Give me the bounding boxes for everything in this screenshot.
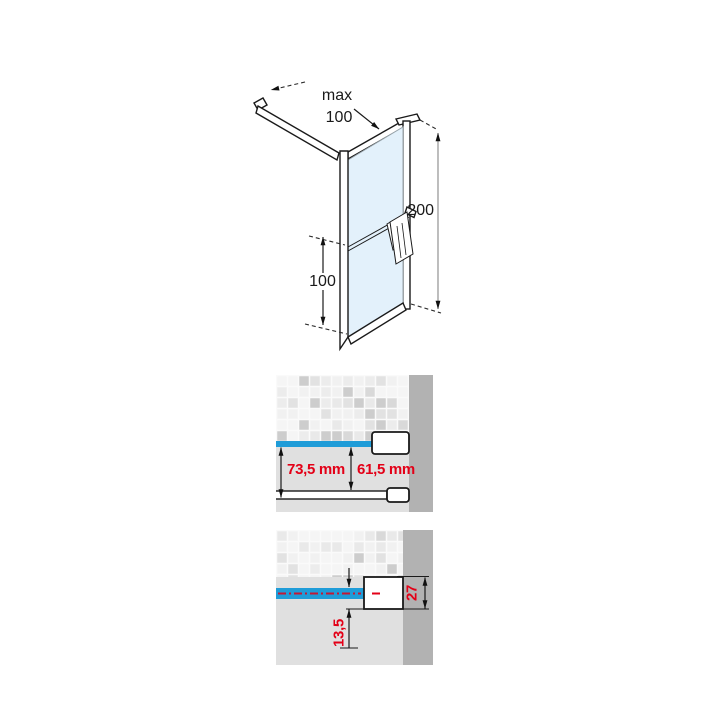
- label-width-100: 100: [326, 109, 353, 126]
- tile: [387, 564, 397, 574]
- tile: [376, 398, 386, 408]
- tile: [288, 564, 298, 574]
- label-73-5-mm: 73,5 mm: [287, 461, 345, 478]
- tile: [277, 553, 287, 563]
- tile: [310, 420, 320, 430]
- tile: [343, 431, 353, 441]
- tile: [321, 431, 331, 441]
- tile: [277, 564, 287, 574]
- tile: [398, 420, 408, 430]
- tile: [277, 387, 287, 397]
- wall-profile-plan: [364, 577, 403, 609]
- tile: [277, 431, 287, 441]
- tile: [376, 542, 386, 552]
- tile: [398, 387, 408, 397]
- tile: [277, 376, 287, 386]
- tile: [376, 376, 386, 386]
- tile: [365, 564, 375, 574]
- label-max: max: [322, 87, 352, 104]
- tile: [310, 553, 320, 563]
- tile: [288, 553, 298, 563]
- tile: [387, 542, 397, 552]
- tile: [332, 564, 342, 574]
- bar-wall-bracket: [387, 488, 409, 502]
- tile: [376, 387, 386, 397]
- tile: [365, 409, 375, 419]
- tile: [288, 420, 298, 430]
- glass-edge-plan: [276, 441, 372, 447]
- tile: [387, 387, 397, 397]
- tile: [354, 542, 364, 552]
- tile: [365, 420, 375, 430]
- plan-view-offsets: 73,5 mm 61,5 mm: [276, 375, 433, 512]
- height-ext-bottom: [411, 304, 441, 313]
- tile: [288, 387, 298, 397]
- tile: [332, 542, 342, 552]
- tile: [376, 531, 386, 541]
- tile: [354, 420, 364, 430]
- plan-view-profile-detail: 13,5 27: [276, 530, 433, 665]
- tile: [332, 398, 342, 408]
- tile: [288, 398, 298, 408]
- label-height-200: 200: [407, 202, 434, 219]
- tile: [288, 542, 298, 552]
- tile: [299, 376, 309, 386]
- tile: [299, 542, 309, 552]
- tile: [299, 431, 309, 441]
- tile: [354, 409, 364, 419]
- glass-wall-bracket: [372, 432, 409, 454]
- tile: [354, 564, 364, 574]
- tile: [343, 553, 353, 563]
- tile: [387, 553, 397, 563]
- tile: [365, 531, 375, 541]
- tile: [387, 420, 397, 430]
- front-profile: [340, 151, 348, 349]
- tile: [310, 531, 320, 541]
- tile: [299, 387, 309, 397]
- tile: [310, 398, 320, 408]
- label-27: 27: [404, 585, 421, 601]
- tile: [354, 553, 364, 563]
- tile: [332, 431, 342, 441]
- max-width-leader-arrow: [354, 109, 379, 129]
- tile: [343, 542, 353, 552]
- tile: [354, 431, 364, 441]
- tile: [321, 542, 331, 552]
- tile: [376, 409, 386, 419]
- tile: [343, 420, 353, 430]
- label-61-5-mm: 61,5 mm: [357, 461, 415, 478]
- tile: [332, 420, 342, 430]
- tile: [288, 431, 298, 441]
- tile: [321, 387, 331, 397]
- tile: [365, 553, 375, 563]
- tile: [387, 409, 397, 419]
- tile: [343, 387, 353, 397]
- tile: [299, 420, 309, 430]
- tile: [310, 409, 320, 419]
- tile: [343, 376, 353, 386]
- tile: [343, 409, 353, 419]
- tile: [387, 376, 397, 386]
- tile: [387, 531, 397, 541]
- tile: [376, 564, 386, 574]
- tile: [277, 531, 287, 541]
- max-width-leader-dashed: [271, 82, 305, 90]
- height-ext-top: [420, 120, 438, 130]
- tile: [299, 531, 309, 541]
- tile: [354, 376, 364, 386]
- tile: [321, 409, 331, 419]
- tile: [332, 376, 342, 386]
- tile: [365, 387, 375, 397]
- tile: [288, 409, 298, 419]
- support-bar-plan: [276, 491, 387, 499]
- tile: [321, 420, 331, 430]
- tile: [310, 387, 320, 397]
- tile: [343, 531, 353, 541]
- tile: [299, 398, 309, 408]
- tile: [365, 398, 375, 408]
- tile: [310, 564, 320, 574]
- tile: [321, 531, 331, 541]
- isometric-panel-view: max 100 200 100: [248, 73, 458, 358]
- tile: [277, 542, 287, 552]
- tile: [299, 553, 309, 563]
- tile: [343, 564, 353, 574]
- label-bar-height-100: 100: [309, 273, 336, 290]
- tile: [354, 387, 364, 397]
- tile: [332, 531, 342, 541]
- tile: [376, 553, 386, 563]
- tile: [310, 376, 320, 386]
- tile: [332, 409, 342, 419]
- tile: [288, 376, 298, 386]
- tile: [354, 398, 364, 408]
- tile: [376, 420, 386, 430]
- tile: [387, 398, 397, 408]
- tile: [321, 564, 331, 574]
- tile: [354, 531, 364, 541]
- tile: [299, 564, 309, 574]
- tile: [365, 376, 375, 386]
- tile: [277, 409, 287, 419]
- tile: [277, 398, 287, 408]
- tile: [277, 420, 287, 430]
- tile: [398, 376, 408, 386]
- side-wall: [409, 375, 433, 512]
- tile: [343, 398, 353, 408]
- tile: [332, 387, 342, 397]
- tile: [365, 542, 375, 552]
- tile: [398, 409, 408, 419]
- label-13-5: 13,5: [331, 619, 348, 647]
- tile: [299, 409, 309, 419]
- tile: [288, 531, 298, 541]
- tile: [310, 542, 320, 552]
- tile: [332, 553, 342, 563]
- tile: [321, 398, 331, 408]
- tile: [321, 376, 331, 386]
- tile: [398, 398, 408, 408]
- tile: [321, 553, 331, 563]
- tile: [310, 431, 320, 441]
